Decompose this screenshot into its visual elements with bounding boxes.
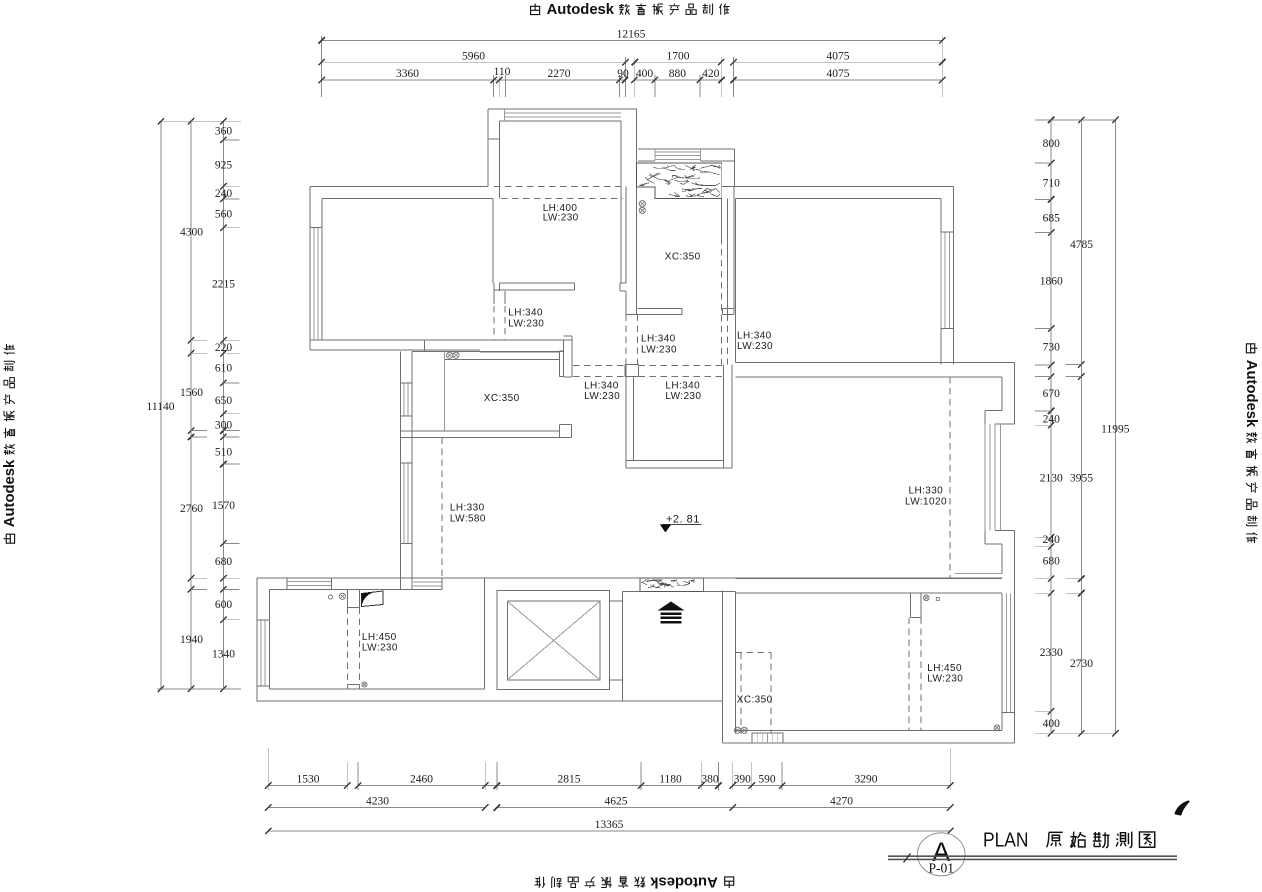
svg-text:2270: 2270: [548, 68, 571, 80]
svg-text:510: 510: [215, 446, 233, 458]
svg-text:LW:230: LW:230: [641, 344, 677, 355]
svg-text:4075: 4075: [827, 68, 850, 80]
svg-text:LH:340: LH:340: [508, 308, 543, 319]
svg-text:610: 610: [215, 363, 233, 375]
svg-text:LW:230: LW:230: [665, 391, 701, 402]
svg-text:LW:230: LW:230: [737, 341, 773, 352]
svg-text:560: 560: [215, 209, 233, 221]
svg-text:LH:340: LH:340: [641, 334, 676, 345]
svg-text:925: 925: [215, 160, 233, 172]
svg-text:300: 300: [215, 419, 233, 431]
svg-text:110: 110: [494, 66, 511, 78]
svg-text:420: 420: [702, 68, 720, 80]
svg-text:2330: 2330: [1040, 647, 1063, 659]
svg-text:2130: 2130: [1040, 473, 1063, 485]
svg-text:1530: 1530: [297, 774, 320, 786]
svg-text:400: 400: [636, 68, 654, 80]
svg-text:380: 380: [701, 774, 719, 786]
svg-text:400: 400: [1043, 718, 1061, 730]
svg-text:XC:350: XC:350: [665, 252, 701, 263]
svg-text:XC:350: XC:350: [737, 695, 773, 706]
svg-text:13365: 13365: [595, 819, 624, 831]
svg-text:650: 650: [215, 395, 233, 407]
svg-text:360: 360: [215, 126, 233, 138]
svg-text:LW:230: LW:230: [584, 391, 620, 402]
svg-text:LW:230: LW:230: [543, 213, 579, 224]
svg-text:LH:450: LH:450: [362, 632, 397, 643]
svg-text:220: 220: [215, 342, 233, 354]
svg-text:3290: 3290: [855, 774, 878, 786]
svg-text:670: 670: [1043, 388, 1061, 400]
svg-text:1180: 1180: [659, 774, 682, 786]
svg-text:LW:580: LW:580: [450, 514, 486, 525]
svg-text:730: 730: [1043, 341, 1061, 353]
svg-text:PLAN: PLAN: [983, 830, 1029, 852]
svg-text:XC:350: XC:350: [484, 393, 520, 404]
svg-text:11995: 11995: [1101, 424, 1130, 436]
svg-text:LH:330: LH:330: [450, 503, 485, 514]
svg-text:600: 600: [215, 599, 233, 611]
svg-text:1700: 1700: [667, 50, 690, 62]
svg-text:12165: 12165: [617, 29, 646, 41]
svg-text:LW:1020: LW:1020: [905, 496, 947, 507]
svg-text:680: 680: [1043, 556, 1061, 568]
svg-text:LH:340: LH:340: [584, 380, 619, 391]
svg-text:590: 590: [758, 774, 776, 786]
svg-text:LH:340: LH:340: [665, 380, 700, 391]
svg-text:4075: 4075: [827, 50, 850, 62]
svg-text:1940: 1940: [180, 634, 203, 646]
svg-text:685: 685: [1043, 212, 1061, 224]
svg-text:P-01: P-01: [928, 861, 954, 876]
svg-text:3360: 3360: [396, 68, 419, 80]
svg-text:800: 800: [1043, 138, 1061, 150]
svg-text:Autodesk: Autodesk: [650, 873, 718, 889]
svg-text:2760: 2760: [180, 503, 203, 515]
svg-text:1860: 1860: [1040, 275, 1063, 287]
svg-text:680: 680: [215, 556, 233, 568]
svg-text:1560: 1560: [180, 387, 203, 399]
svg-text:LH:450: LH:450: [927, 663, 962, 674]
svg-text:1570: 1570: [212, 500, 235, 512]
svg-text:Autodesk: Autodesk: [1243, 360, 1259, 428]
svg-text:LW:230: LW:230: [927, 674, 963, 685]
svg-text:2215: 2215: [212, 279, 235, 291]
svg-text:4625: 4625: [605, 796, 628, 808]
svg-text:5960: 5960: [462, 50, 485, 62]
svg-text:90: 90: [617, 68, 629, 80]
svg-text:240: 240: [215, 188, 233, 200]
svg-text:3955: 3955: [1070, 473, 1093, 485]
svg-text:LH:340: LH:340: [737, 330, 772, 341]
svg-text:+2. 81: +2. 81: [666, 514, 700, 526]
svg-text:4270: 4270: [830, 796, 853, 808]
svg-text:LW:230: LW:230: [362, 643, 398, 654]
svg-text:11140: 11140: [147, 401, 175, 413]
svg-text:Autodesk: Autodesk: [547, 2, 615, 18]
svg-text:710: 710: [1043, 178, 1061, 190]
svg-text:390: 390: [734, 774, 752, 786]
svg-text:2460: 2460: [410, 774, 433, 786]
svg-text:240: 240: [1043, 534, 1061, 546]
svg-text:1340: 1340: [212, 649, 235, 661]
svg-text:Autodesk: Autodesk: [2, 459, 18, 527]
svg-text:2815: 2815: [558, 774, 581, 786]
svg-text:4785: 4785: [1070, 239, 1093, 251]
svg-text:880: 880: [669, 68, 687, 80]
svg-text:240: 240: [1043, 413, 1061, 425]
svg-text:4230: 4230: [366, 796, 389, 808]
svg-text:2730: 2730: [1070, 658, 1093, 670]
svg-text:4300: 4300: [180, 227, 203, 239]
svg-text:LW:230: LW:230: [508, 318, 544, 329]
svg-text:LH:330: LH:330: [909, 486, 944, 497]
